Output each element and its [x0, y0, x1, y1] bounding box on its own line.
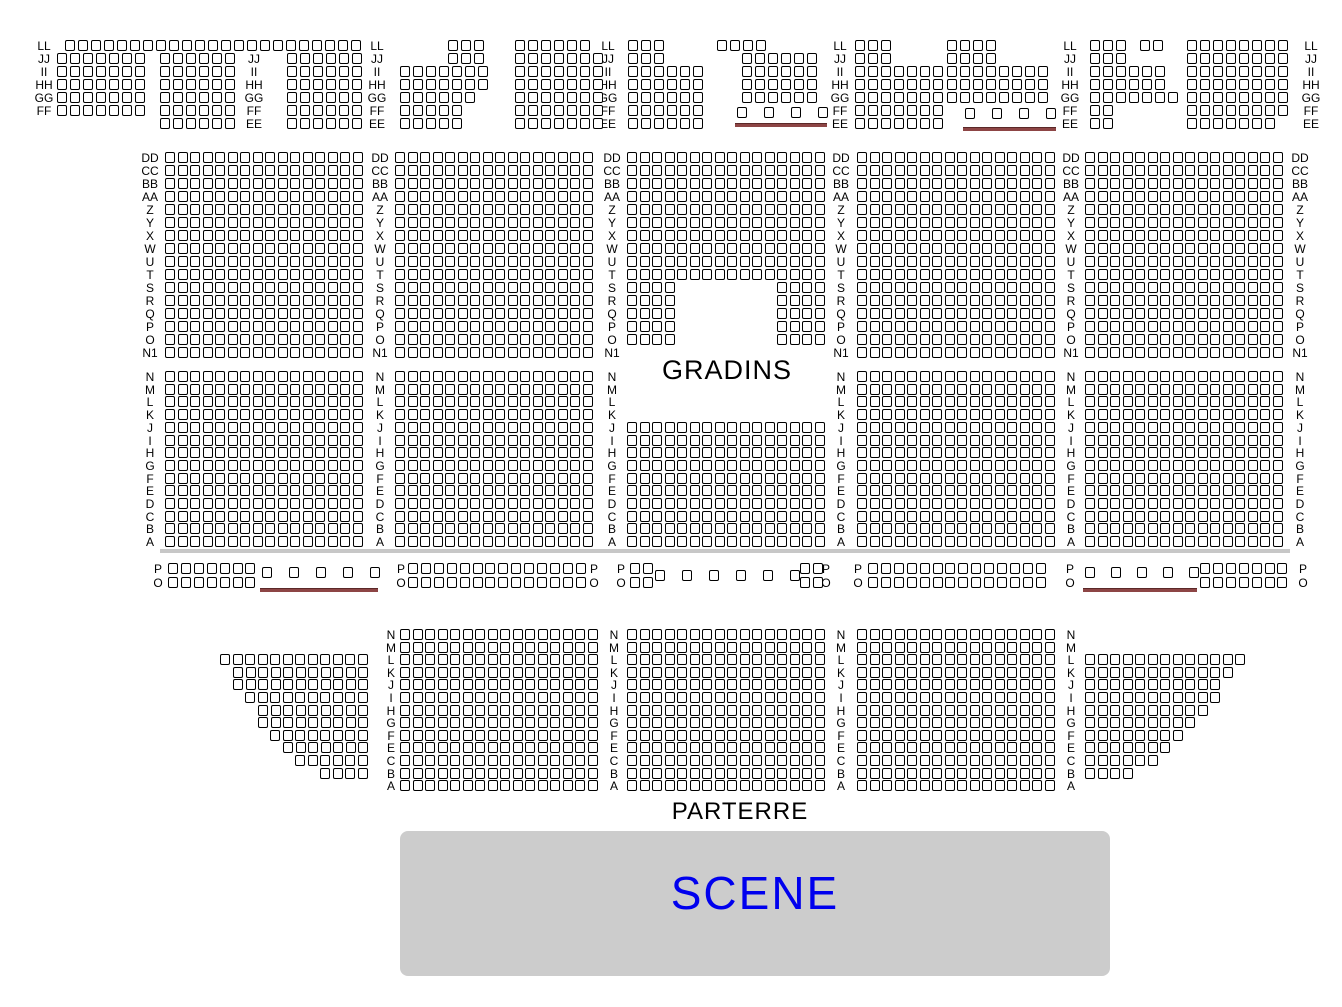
seat[interactable] [245, 577, 255, 588]
seat[interactable] [488, 679, 498, 690]
seat[interactable] [982, 642, 992, 653]
seat[interactable] [790, 334, 800, 345]
seat[interactable] [777, 654, 787, 665]
seat[interactable] [195, 40, 205, 51]
seat[interactable] [627, 629, 637, 640]
seat[interactable] [500, 768, 510, 779]
seat[interactable] [1110, 347, 1120, 358]
seat[interactable] [1187, 105, 1197, 116]
seat[interactable] [995, 705, 1005, 716]
seat[interactable] [488, 768, 498, 779]
seat[interactable] [346, 679, 356, 690]
seat[interactable] [665, 308, 675, 319]
seat[interactable] [290, 334, 300, 345]
seat[interactable] [96, 66, 106, 77]
seat[interactable] [1038, 66, 1048, 77]
seat[interactable] [1248, 498, 1258, 509]
seat[interactable] [470, 396, 480, 407]
seat[interactable] [1110, 768, 1120, 779]
seat[interactable] [463, 667, 473, 678]
seat[interactable] [920, 742, 930, 753]
seat[interactable] [190, 422, 200, 433]
seat[interactable] [932, 523, 942, 534]
seat[interactable] [245, 563, 255, 574]
seat[interactable] [1160, 384, 1170, 395]
seat[interactable] [135, 105, 145, 116]
seat[interactable] [1020, 498, 1030, 509]
seat[interactable] [690, 730, 700, 741]
seat[interactable] [203, 230, 213, 241]
seat[interactable] [882, 473, 892, 484]
seat[interactable] [265, 191, 275, 202]
seat[interactable] [895, 396, 905, 407]
seat[interactable] [420, 165, 430, 176]
seat[interactable] [765, 629, 775, 640]
seat[interactable] [1239, 40, 1249, 51]
seat[interactable] [652, 692, 662, 703]
seat[interactable] [995, 409, 1005, 420]
seat[interactable] [1160, 473, 1170, 484]
seat[interactable] [511, 577, 521, 588]
seat[interactable] [1032, 230, 1042, 241]
seat[interactable] [1160, 230, 1170, 241]
seat[interactable] [881, 66, 891, 77]
seat[interactable] [495, 230, 505, 241]
seat[interactable] [533, 308, 543, 319]
seat[interactable] [303, 178, 313, 189]
seat[interactable] [665, 269, 675, 280]
seat[interactable] [932, 755, 942, 766]
seat[interactable] [558, 321, 568, 332]
seat[interactable] [420, 256, 430, 267]
seat[interactable] [353, 396, 363, 407]
seat[interactable] [627, 642, 637, 653]
seat[interactable] [970, 422, 980, 433]
seat[interactable] [790, 629, 800, 640]
seat[interactable] [1173, 730, 1183, 741]
seat[interactable] [1260, 422, 1270, 433]
seat[interactable] [907, 577, 917, 588]
seat[interactable] [1110, 396, 1120, 407]
seat[interactable] [353, 435, 363, 446]
seat[interactable] [315, 165, 325, 176]
seat[interactable] [870, 768, 880, 779]
seat[interactable] [1020, 667, 1030, 678]
seat[interactable] [1200, 105, 1210, 116]
seat[interactable] [752, 178, 762, 189]
seat[interactable] [483, 371, 493, 382]
seat[interactable] [627, 498, 637, 509]
seat[interactable] [588, 667, 598, 678]
seat[interactable] [225, 105, 235, 116]
seat[interactable] [253, 511, 263, 522]
seat[interactable] [982, 217, 992, 228]
seat[interactable] [345, 654, 355, 665]
seat[interactable] [740, 178, 750, 189]
seat[interactable] [325, 40, 335, 51]
seat[interactable] [933, 105, 943, 116]
seat[interactable] [215, 447, 225, 458]
seat[interactable] [438, 768, 448, 779]
seat[interactable] [995, 384, 1005, 395]
seat[interactable] [807, 66, 817, 77]
seat[interactable] [495, 384, 505, 395]
seat[interactable] [756, 40, 766, 51]
seat[interactable] [445, 204, 455, 215]
seat[interactable] [165, 295, 175, 306]
seat[interactable] [420, 409, 430, 420]
seat[interactable] [178, 473, 188, 484]
seat[interactable] [781, 79, 791, 90]
seat[interactable] [1020, 191, 1030, 202]
seat[interactable] [395, 409, 405, 420]
seat[interactable] [1032, 409, 1042, 420]
seat[interactable] [677, 243, 687, 254]
seat[interactable] [1110, 384, 1120, 395]
wheelchair-seat[interactable] [682, 570, 692, 581]
seat[interactable] [1173, 654, 1183, 665]
seat[interactable] [857, 243, 867, 254]
seat[interactable] [781, 53, 791, 64]
seat[interactable] [458, 536, 468, 547]
seat[interactable] [1123, 217, 1133, 228]
seat[interactable] [203, 282, 213, 293]
seat[interactable] [550, 679, 560, 690]
seat[interactable] [520, 308, 530, 319]
seat[interactable] [445, 396, 455, 407]
seat[interactable] [445, 498, 455, 509]
seat[interactable] [777, 447, 787, 458]
seat[interactable] [1173, 308, 1183, 319]
seat[interactable] [190, 217, 200, 228]
seat[interactable] [1226, 79, 1236, 90]
seat[interactable] [727, 152, 737, 163]
seat[interactable] [690, 705, 700, 716]
seat[interactable] [995, 152, 1005, 163]
seat[interactable] [495, 256, 505, 267]
seat[interactable] [1007, 705, 1017, 716]
seat[interactable] [1173, 447, 1183, 458]
seat[interactable] [870, 243, 880, 254]
seat[interactable] [278, 498, 288, 509]
seat[interactable] [1110, 473, 1120, 484]
seat[interactable] [881, 53, 891, 64]
seat[interactable] [203, 347, 213, 358]
seat[interactable] [333, 692, 343, 703]
seat[interactable] [982, 152, 992, 163]
seat[interactable] [665, 204, 675, 215]
seat[interactable] [433, 334, 443, 345]
seat[interactable] [1273, 204, 1283, 215]
seat[interactable] [1173, 152, 1183, 163]
seat[interactable] [932, 409, 942, 420]
seat[interactable] [1260, 396, 1270, 407]
seat[interactable] [1123, 705, 1133, 716]
seat[interactable] [1278, 92, 1288, 103]
seat[interactable] [550, 654, 560, 665]
seat[interactable] [777, 536, 787, 547]
seat[interactable] [270, 654, 280, 665]
seat[interactable] [957, 667, 967, 678]
seat[interactable] [1032, 460, 1042, 471]
seat[interactable] [1110, 755, 1120, 766]
seat[interactable] [533, 536, 543, 547]
seat[interactable] [1110, 308, 1120, 319]
seat[interactable] [1045, 204, 1055, 215]
seat[interactable] [957, 243, 967, 254]
seat[interactable] [882, 730, 892, 741]
seat[interactable] [533, 384, 543, 395]
seat[interactable] [203, 384, 213, 395]
seat[interactable] [920, 191, 930, 202]
seat[interactable] [1032, 730, 1042, 741]
seat[interactable] [1032, 217, 1042, 228]
seat[interactable] [1110, 447, 1120, 458]
seat[interactable] [920, 422, 930, 433]
seat[interactable] [575, 780, 585, 791]
seat[interactable] [907, 730, 917, 741]
seat[interactable] [520, 152, 530, 163]
seat[interactable] [1223, 321, 1233, 332]
seat[interactable] [583, 217, 593, 228]
seat[interactable] [755, 92, 765, 103]
seat[interactable] [541, 92, 551, 103]
seat[interactable] [765, 536, 775, 547]
seat[interactable] [957, 269, 967, 280]
seat[interactable] [338, 40, 348, 51]
seat[interactable] [1007, 485, 1017, 496]
seat[interactable] [982, 705, 992, 716]
seat[interactable] [426, 118, 436, 129]
seat[interactable] [727, 511, 737, 522]
seat[interactable] [752, 460, 762, 471]
seat[interactable] [765, 422, 775, 433]
seat[interactable] [640, 511, 650, 522]
seat[interactable] [420, 523, 430, 534]
seat[interactable] [186, 118, 196, 129]
seat[interactable] [882, 178, 892, 189]
seat[interactable] [545, 473, 555, 484]
seat[interactable] [627, 536, 637, 547]
seat[interactable] [957, 217, 967, 228]
seat[interactable] [473, 577, 483, 588]
seat[interactable] [1135, 282, 1145, 293]
seat[interactable] [1248, 409, 1258, 420]
seat[interactable] [765, 654, 775, 665]
seat[interactable] [640, 152, 650, 163]
seat[interactable] [815, 485, 825, 496]
seat[interactable] [228, 485, 238, 496]
seat[interactable] [857, 282, 867, 293]
seat[interactable] [1273, 191, 1283, 202]
seat[interactable] [228, 152, 238, 163]
seat[interactable] [815, 435, 825, 446]
seat[interactable] [570, 460, 580, 471]
seat[interactable] [203, 498, 213, 509]
seat[interactable] [433, 396, 443, 407]
seat[interactable] [815, 536, 825, 547]
seat[interactable] [882, 191, 892, 202]
seat[interactable] [958, 577, 968, 588]
seat[interactable] [982, 230, 992, 241]
seat[interactable] [413, 105, 423, 116]
seat[interactable] [999, 79, 1009, 90]
seat[interactable] [1185, 511, 1195, 522]
wheelchair-seat[interactable] [764, 107, 774, 118]
seat[interactable] [570, 217, 580, 228]
seat[interactable] [1223, 204, 1233, 215]
seat[interactable] [570, 334, 580, 345]
seat[interactable] [982, 191, 992, 202]
seat[interactable] [215, 217, 225, 228]
seat[interactable] [240, 536, 250, 547]
seat[interactable] [857, 768, 867, 779]
seat[interactable] [420, 447, 430, 458]
seat[interactable] [740, 243, 750, 254]
seat[interactable] [970, 654, 980, 665]
seat[interactable] [643, 577, 653, 588]
seat[interactable] [1110, 511, 1120, 522]
seat[interactable] [920, 396, 930, 407]
seat[interactable] [1135, 717, 1145, 728]
seat[interactable] [1198, 705, 1208, 716]
seat[interactable] [400, 780, 410, 791]
seat[interactable] [777, 642, 787, 653]
seat[interactable] [1185, 204, 1195, 215]
seat[interactable] [253, 422, 263, 433]
seat[interactable] [558, 152, 568, 163]
seat[interactable] [1020, 282, 1030, 293]
seat[interactable] [870, 523, 880, 534]
seat[interactable] [1185, 523, 1195, 534]
seat[interactable] [1223, 396, 1233, 407]
seat[interactable] [475, 755, 485, 766]
seat[interactable] [228, 460, 238, 471]
seat[interactable] [575, 742, 585, 753]
seat[interactable] [328, 409, 338, 420]
seat[interactable] [420, 435, 430, 446]
seat[interactable] [500, 717, 510, 728]
seat[interactable] [1032, 435, 1042, 446]
seat[interactable] [1085, 742, 1095, 753]
seat[interactable] [1123, 152, 1133, 163]
seat[interactable] [278, 217, 288, 228]
seat[interactable] [1007, 460, 1017, 471]
seat[interactable] [995, 295, 1005, 306]
seat[interactable] [265, 409, 275, 420]
seat[interactable] [278, 230, 288, 241]
seat[interactable] [802, 282, 812, 293]
seat[interactable] [895, 269, 905, 280]
seat[interactable] [654, 79, 664, 90]
seat[interactable] [1045, 768, 1055, 779]
seat[interactable] [1020, 409, 1030, 420]
seat[interactable] [583, 308, 593, 319]
seat[interactable] [495, 178, 505, 189]
seat[interactable] [296, 742, 306, 753]
seat[interactable] [907, 371, 917, 382]
wheelchair-seat[interactable] [1189, 567, 1199, 578]
seat[interactable] [520, 460, 530, 471]
seat[interactable] [920, 347, 930, 358]
seat[interactable] [1273, 178, 1283, 189]
seat[interactable] [920, 629, 930, 640]
seat[interactable] [178, 485, 188, 496]
seat[interactable] [203, 217, 213, 228]
seat[interactable] [1185, 384, 1195, 395]
seat[interactable] [727, 217, 737, 228]
seat[interactable] [740, 152, 750, 163]
seat[interactable] [483, 282, 493, 293]
seat[interactable] [215, 165, 225, 176]
seat[interactable] [895, 256, 905, 267]
seat[interactable] [160, 105, 170, 116]
seat[interactable] [652, 742, 662, 753]
seat[interactable] [215, 230, 225, 241]
seat[interactable] [1160, 679, 1170, 690]
seat[interactable] [894, 79, 904, 90]
seat[interactable] [1210, 409, 1220, 420]
seat[interactable] [627, 230, 637, 241]
seat[interactable] [413, 667, 423, 678]
seat[interactable] [1032, 243, 1042, 254]
seat[interactable] [794, 66, 804, 77]
seat[interactable] [240, 523, 250, 534]
seat[interactable] [1123, 396, 1133, 407]
seat[interactable] [400, 66, 410, 77]
seat[interactable] [253, 536, 263, 547]
seat[interactable] [339, 118, 349, 129]
seat[interactable] [1248, 282, 1258, 293]
seat[interactable] [815, 768, 825, 779]
seat[interactable] [463, 705, 473, 716]
seat[interactable] [665, 321, 675, 332]
seat[interactable] [907, 165, 917, 176]
seat[interactable] [395, 334, 405, 345]
seat[interactable] [258, 692, 268, 703]
seat[interactable] [881, 92, 891, 103]
seat[interactable] [570, 435, 580, 446]
seat[interactable] [265, 485, 275, 496]
seat[interactable] [1198, 692, 1208, 703]
seat[interactable] [1085, 473, 1095, 484]
seat[interactable] [420, 371, 430, 382]
seat[interactable] [165, 334, 175, 345]
seat[interactable] [970, 334, 980, 345]
seat[interactable] [190, 334, 200, 345]
seat[interactable] [1007, 755, 1017, 766]
seat[interactable] [190, 204, 200, 215]
seat[interactable] [1110, 717, 1120, 728]
seat[interactable] [755, 79, 765, 90]
seat[interactable] [868, 40, 878, 51]
seat[interactable] [463, 780, 473, 791]
seat[interactable] [433, 409, 443, 420]
seat[interactable] [1045, 679, 1055, 690]
seat[interactable] [495, 485, 505, 496]
seat[interactable] [702, 642, 712, 653]
seat[interactable] [563, 755, 573, 766]
seat[interactable] [907, 642, 917, 653]
seat[interactable] [1210, 654, 1220, 665]
seat[interactable] [1248, 485, 1258, 496]
seat[interactable] [970, 230, 980, 241]
seat[interactable] [278, 282, 288, 293]
seat[interactable] [353, 191, 363, 202]
seat[interactable] [588, 780, 598, 791]
seat[interactable] [240, 152, 250, 163]
seat[interactable] [570, 523, 580, 534]
